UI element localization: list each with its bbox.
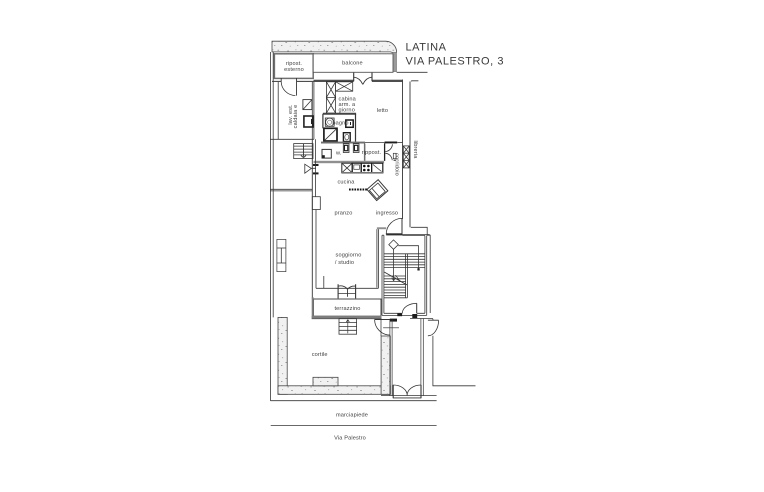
svg-text:ingresso: ingresso (376, 211, 398, 217)
svg-text:rippost.: rippost. (362, 150, 382, 156)
svg-text:cortile: cortile (312, 352, 328, 358)
svg-text:/ studio: / studio (335, 260, 354, 266)
svg-text:giorno: giorno (339, 108, 355, 114)
svg-text:VIA PALESTRO, 3: VIA PALESTRO, 3 (406, 56, 505, 68)
svg-text:ripost.: ripost. (286, 61, 303, 67)
svg-text:esterno: esterno (284, 67, 304, 73)
svg-text:w.: w. (335, 151, 342, 157)
svg-text:marciapiede: marciapiede (336, 413, 368, 419)
svg-text:LATINA: LATINA (406, 42, 447, 54)
svg-text:balcone: balcone (342, 61, 363, 67)
svg-text:corridoio: corridoio (394, 153, 400, 176)
svg-text:letto: letto (377, 108, 388, 114)
svg-text:soggiorno: soggiorno (336, 253, 362, 259)
svg-text:cucina: cucina (337, 180, 355, 186)
svg-text:terrazzino: terrazzino (334, 306, 360, 312)
svg-text:lav. est.: lav. est. (288, 104, 294, 125)
svg-text:libreria: libreria (412, 141, 418, 160)
svg-text:pranzo: pranzo (334, 211, 352, 217)
svg-text:caldaia e: caldaia e (293, 105, 299, 129)
svg-text:Via Palestro: Via Palestro (334, 436, 366, 442)
